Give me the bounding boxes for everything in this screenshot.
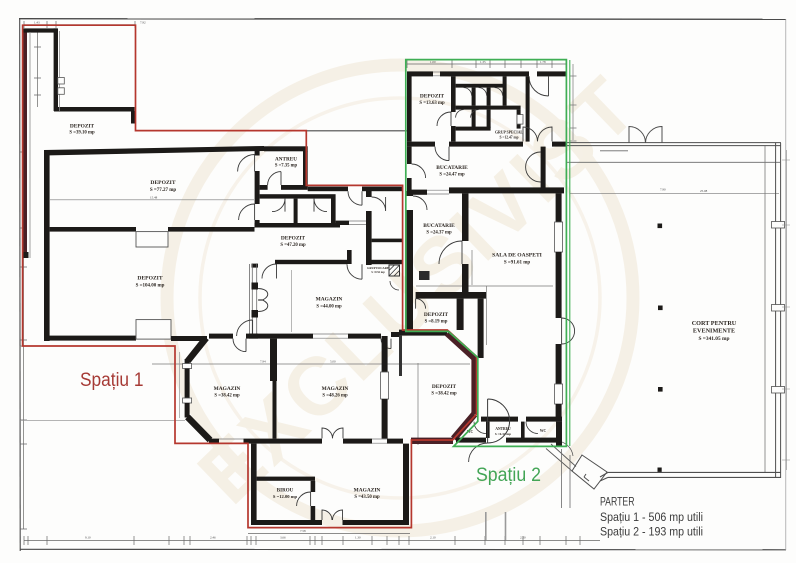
svg-text:S =12.47 mp: S =12.47 mp (500, 136, 519, 140)
svg-text:7.58: 7.58 (300, 529, 306, 533)
svg-text:Spațiu 2 - 193 mp utili: Spațiu 2 - 193 mp utili (600, 525, 703, 539)
svg-text:S =13.63 mp: S =13.63 mp (419, 101, 445, 106)
svg-text:DEPOZIT: DEPOZIT (150, 180, 175, 186)
svg-text:CORT PENTRU: CORT PENTRU (692, 320, 737, 327)
svg-text:7.92: 7.92 (140, 21, 146, 25)
svg-text:GRUP FOCARE: GRUP FOCARE (367, 266, 389, 270)
svg-text:S =24.47 mp: S =24.47 mp (439, 173, 465, 178)
svg-text:2.50: 2.50 (520, 536, 526, 540)
svg-text:7.90: 7.90 (660, 188, 666, 192)
svg-text:Spațiu 1 - 506 mp utili: Spațiu 1 - 506 mp utili (600, 510, 703, 524)
svg-text:DEPOZIT: DEPOZIT (137, 276, 162, 282)
svg-text:S =38.42 mp: S =38.42 mp (214, 394, 240, 399)
svg-text:7.94: 7.94 (260, 360, 266, 364)
svg-text:1.30: 1.30 (355, 536, 361, 540)
svg-text:ANTREU: ANTREU (275, 157, 297, 163)
svg-text:1.43: 1.43 (34, 21, 40, 25)
svg-text:DEPOZIT: DEPOZIT (424, 312, 449, 318)
svg-text:S =39.10 mp: S =39.10 mp (69, 131, 95, 136)
svg-text:1.00: 1.00 (430, 60, 436, 64)
svg-text:MAGAZIN: MAGAZIN (214, 386, 241, 392)
svg-text:15.48: 15.48 (150, 196, 158, 200)
svg-text:2.10: 2.10 (430, 536, 436, 540)
svg-text:Spațiu 1: Spațiu 1 (80, 370, 144, 391)
svg-text:DEPOZIT: DEPOZIT (70, 124, 95, 130)
svg-text:S =44.00 mp: S =44.00 mp (316, 305, 342, 310)
svg-text:SALA DE OASPETI: SALA DE OASPETI (492, 253, 542, 259)
svg-text:GRUP SPECIAL: GRUP SPECIAL (495, 131, 523, 135)
svg-text:BUCATARIE: BUCATARIE (423, 223, 455, 229)
svg-text:ANTREU: ANTREU (495, 427, 511, 431)
svg-text:Spațiu 2: Spațiu 2 (476, 465, 541, 486)
svg-text:2.46: 2.46 (210, 536, 216, 540)
svg-text:S =47.20 mp: S =47.20 mp (280, 243, 306, 248)
svg-text:MAGAZIN: MAGAZIN (354, 488, 381, 494)
svg-text:DEPOZIT: DEPOZIT (420, 94, 445, 100)
svg-text:9.10: 9.10 (85, 536, 91, 540)
svg-text:DEPOZIT: DEPOZIT (432, 384, 457, 390)
svg-text:S =48.26 mp: S =48.26 mp (322, 394, 348, 399)
svg-text:1.78: 1.78 (540, 60, 546, 64)
svg-text:S =104.00 mp: S =104.00 mp (136, 284, 165, 289)
svg-text:3.66: 3.66 (280, 536, 286, 540)
svg-text:S =341.05 mp: S =341.05 mp (698, 336, 729, 342)
svg-text:S =43.50 mp: S =43.50 mp (354, 495, 380, 500)
svg-text:S =7.35 mp: S =7.35 mp (275, 164, 298, 169)
svg-text:S =8.19 mp: S =8.19 mp (425, 320, 448, 325)
svg-text:25.08: 25.08 (700, 189, 708, 193)
svg-text:S =6.32 mp: S =6.32 mp (495, 432, 511, 436)
svg-text:S =38.42 mp: S =38.42 mp (431, 392, 457, 397)
svg-text:S =91.61 mp: S =91.61 mp (504, 261, 531, 266)
svg-text:5.00: 5.00 (330, 360, 336, 364)
svg-text:S =0.52 mp: S =0.52 mp (371, 271, 385, 274)
svg-text:S =12.00 mp: S =12.00 mp (273, 494, 298, 499)
svg-text:MAGAZIN: MAGAZIN (316, 297, 343, 303)
svg-text:PARTER: PARTER (600, 495, 635, 509)
svg-text:BIROU: BIROU (277, 489, 294, 494)
svg-text:S =77.27 mp: S =77.27 mp (150, 188, 177, 193)
svg-text:WC: WC (540, 429, 547, 433)
svg-text:1.35: 1.35 (480, 60, 486, 64)
svg-text:S =24.37 mp: S =24.37 mp (426, 231, 452, 236)
svg-text:EVENIMENTE: EVENIMENTE (693, 328, 735, 335)
svg-text:MAGAZIN: MAGAZIN (322, 386, 349, 392)
svg-text:BUCATARIE: BUCATARIE (436, 165, 468, 171)
svg-text:DEPOZIT: DEPOZIT (281, 236, 306, 242)
